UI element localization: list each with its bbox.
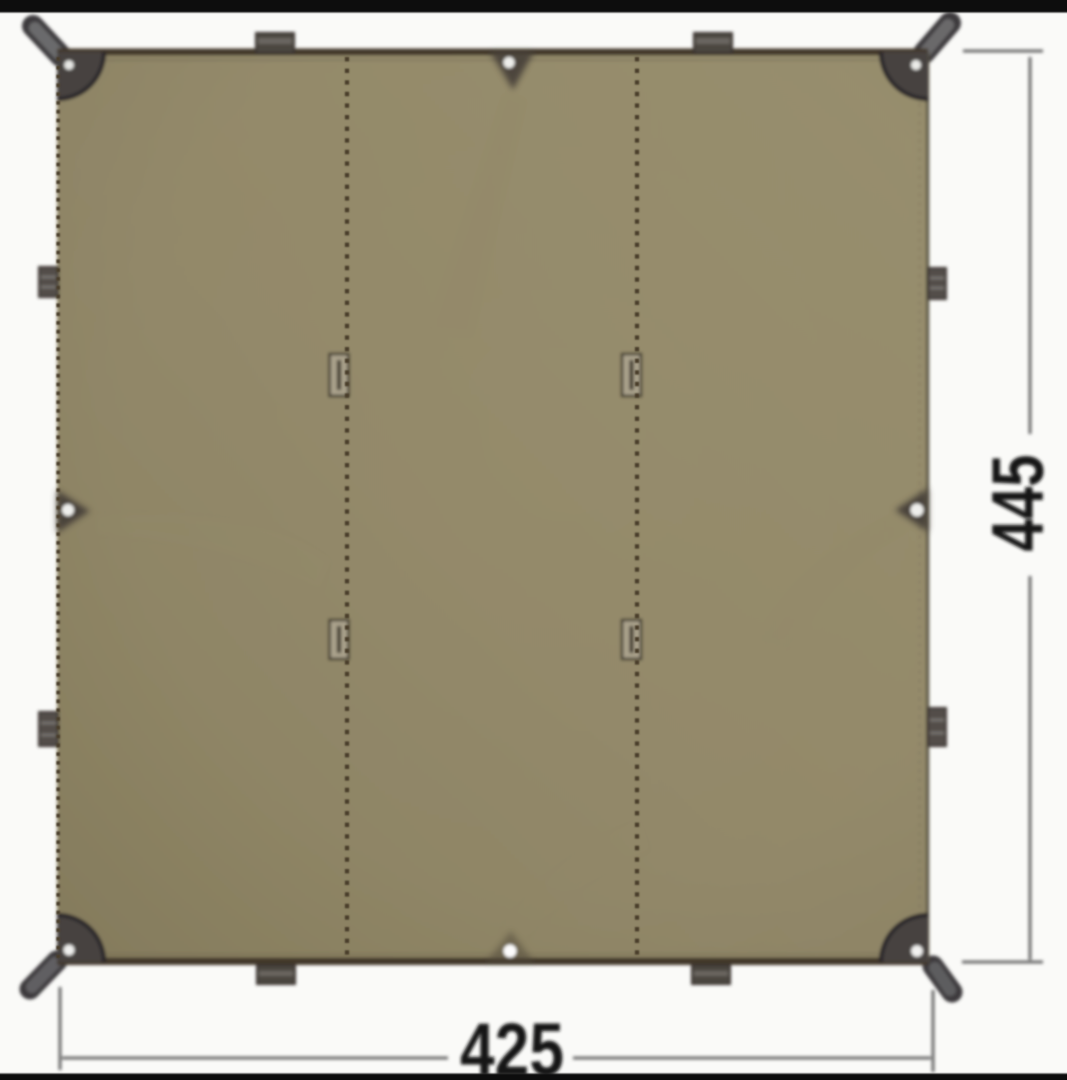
svg-text:445: 445 bbox=[978, 455, 1059, 552]
svg-text:425: 425 bbox=[460, 1008, 564, 1080]
